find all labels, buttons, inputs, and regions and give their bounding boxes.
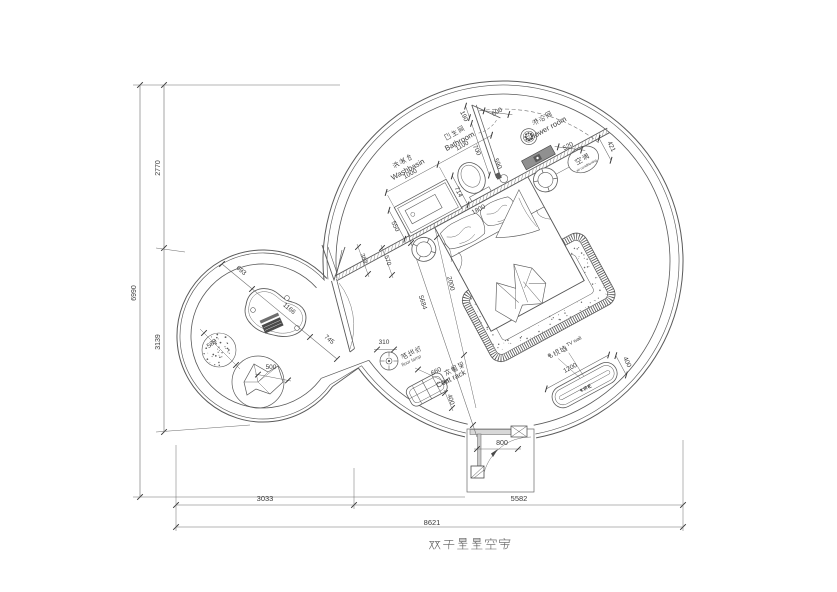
svg-text:5582: 5582 [511,494,528,503]
svg-text:8621: 8621 [424,518,441,527]
svg-text:6990: 6990 [131,285,138,301]
svg-text:3139: 3139 [155,334,162,350]
svg-text:310: 310 [379,339,390,346]
svg-text:3033: 3033 [257,494,274,503]
svg-text:2770: 2770 [155,160,162,176]
svg-text:800: 800 [496,440,508,447]
svg-text:500: 500 [266,364,277,371]
